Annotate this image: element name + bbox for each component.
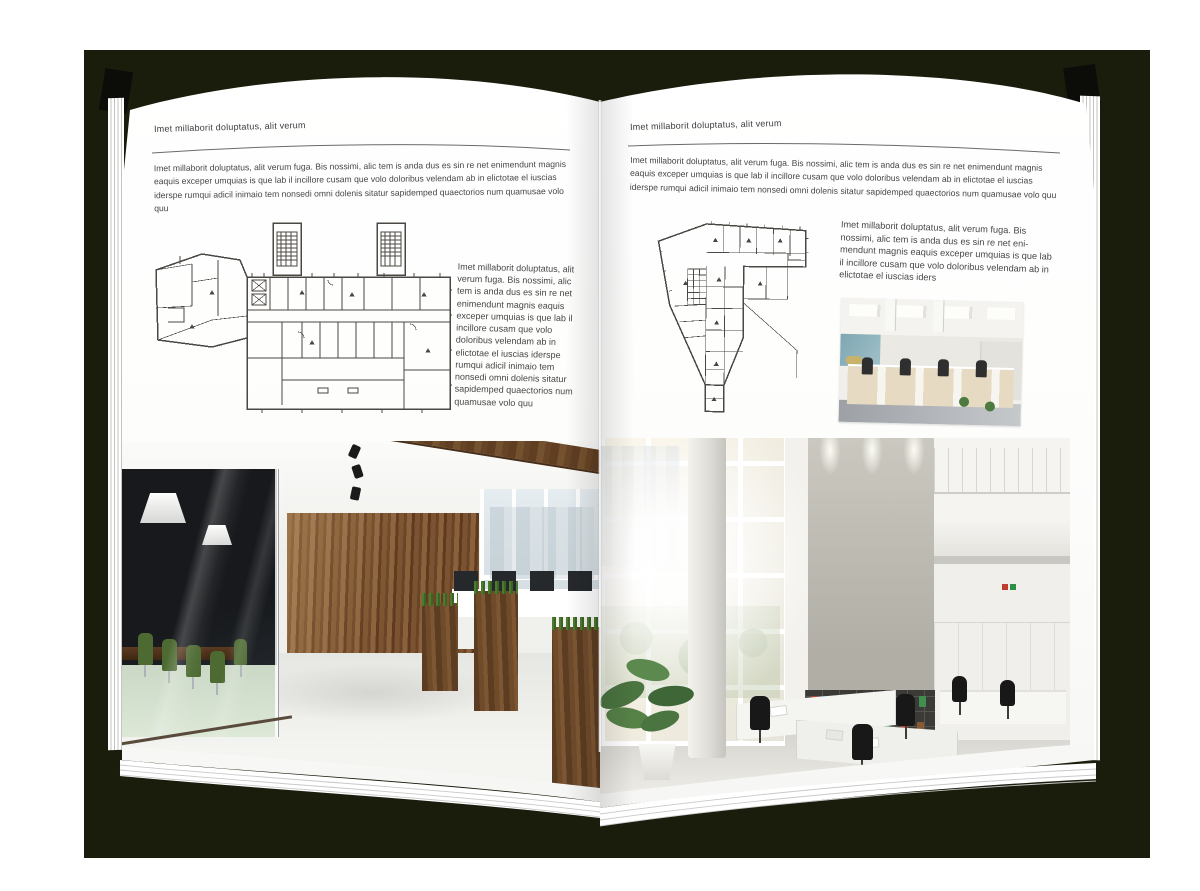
book-spine [598, 100, 602, 752]
wood-planter [552, 627, 600, 791]
page-right-header: Imet millaborit doluptatus, alit verum [630, 118, 782, 132]
office-chair [1000, 680, 1015, 706]
plant-leaf [647, 684, 695, 709]
papers [826, 729, 844, 741]
first-aid-sign [1002, 584, 1018, 592]
green-chair [210, 651, 225, 683]
page-right: Imet millaborit doluptatus, alit verum I… [600, 60, 1094, 808]
photo-office-dark-wood [122, 441, 600, 791]
magazine-mockup: Imet millaborit doluptatus, alit verum I… [0, 0, 1200, 891]
green-chair [186, 645, 201, 677]
page-left-caption: Imet millaborit doluptatus, alit verum f… [454, 261, 580, 411]
page-right-caption: Imet millaborit doluptatus, alit verum f… [839, 218, 1053, 288]
column [885, 299, 897, 331]
concrete-wall [808, 438, 934, 690]
floor-plan-left [152, 220, 452, 418]
page-stack-fore-edge-left [108, 98, 124, 751]
potted-plant [600, 650, 710, 782]
office-chair [896, 694, 915, 726]
green-chair [234, 639, 247, 665]
green-chair [162, 639, 177, 671]
photo-office-small [839, 298, 1024, 426]
glass-partition-edge [275, 469, 279, 737]
plant-leaf [638, 706, 682, 735]
track-lights [350, 443, 364, 507]
floor-plan-right [649, 211, 813, 414]
wood-planter [422, 603, 458, 691]
wood-planter [474, 591, 518, 711]
page-right-intro: Imet millaborit doluptatus, alit verum f… [630, 154, 1061, 202]
glass-meeting-room [122, 469, 277, 737]
page-left-header-rule [152, 144, 572, 156]
mezzanine-balcony [934, 438, 1070, 564]
column [933, 300, 945, 332]
green-chair [138, 633, 153, 665]
plant-pot [636, 744, 678, 780]
page-left: Imet millaborit doluptatus, alit verum I… [122, 60, 600, 802]
pendant-lamp [202, 525, 232, 545]
office-chair [852, 724, 873, 760]
pendant-lamp [140, 493, 186, 523]
office-chair [952, 676, 967, 702]
photo-office-bright-loft [600, 438, 1070, 796]
city-view [490, 507, 594, 579]
page-right-header-rule [628, 142, 1062, 156]
office-chair [750, 696, 770, 730]
binder [919, 696, 926, 707]
page-left-intro: Imet millaborit doluptatus, alit verum f… [154, 158, 579, 216]
page-left-header: Imet millaborit doluptatus, alit verum [154, 120, 306, 134]
